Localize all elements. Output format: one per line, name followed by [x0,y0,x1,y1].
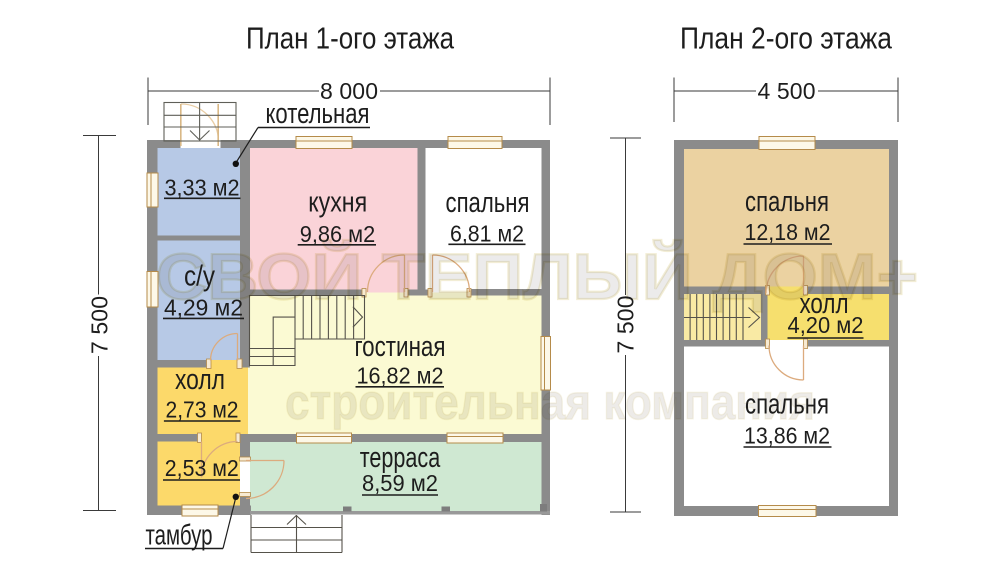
svg-text:12,18 м2: 12,18 м2 [745,219,831,245]
svg-text:7 500: 7 500 [87,296,113,354]
svg-text:13,86 м2: 13,86 м2 [744,423,830,449]
svg-text:спальня: спальня [745,186,829,218]
svg-text:гостиная: гостиная [355,331,446,363]
svg-text:16,82 м2: 16,82 м2 [357,363,444,389]
svg-text:План 1-ого этажа: План 1-ого этажа [246,21,455,56]
svg-text:4 500: 4 500 [758,78,816,104]
svg-text:План 2-ого этажа: План 2-ого этажа [680,21,893,56]
svg-text:холл: холл [175,364,225,396]
svg-text:кухня: кухня [308,187,367,219]
svg-text:3,33 м2: 3,33 м2 [165,175,240,201]
svg-text:котельная: котельная [266,98,370,130]
svg-text:спальня: спальня [446,187,530,219]
svg-text:тамбур: тамбур [146,520,213,552]
svg-text:4,29 м2: 4,29 м2 [164,295,243,321]
svg-text:2,73 м2: 2,73 м2 [166,397,239,423]
svg-text:с/у: с/у [184,261,215,293]
svg-text:2,53 м2: 2,53 м2 [165,455,239,481]
svg-text:8,59 м2: 8,59 м2 [362,470,438,496]
svg-text:7 500: 7 500 [613,296,639,354]
svg-text:спальня: спальня [745,389,829,421]
svg-text:4,20 м2: 4,20 м2 [788,312,864,338]
svg-text:9,86 м2: 9,86 м2 [300,221,376,247]
svg-text:6,81 м2: 6,81 м2 [450,221,524,247]
